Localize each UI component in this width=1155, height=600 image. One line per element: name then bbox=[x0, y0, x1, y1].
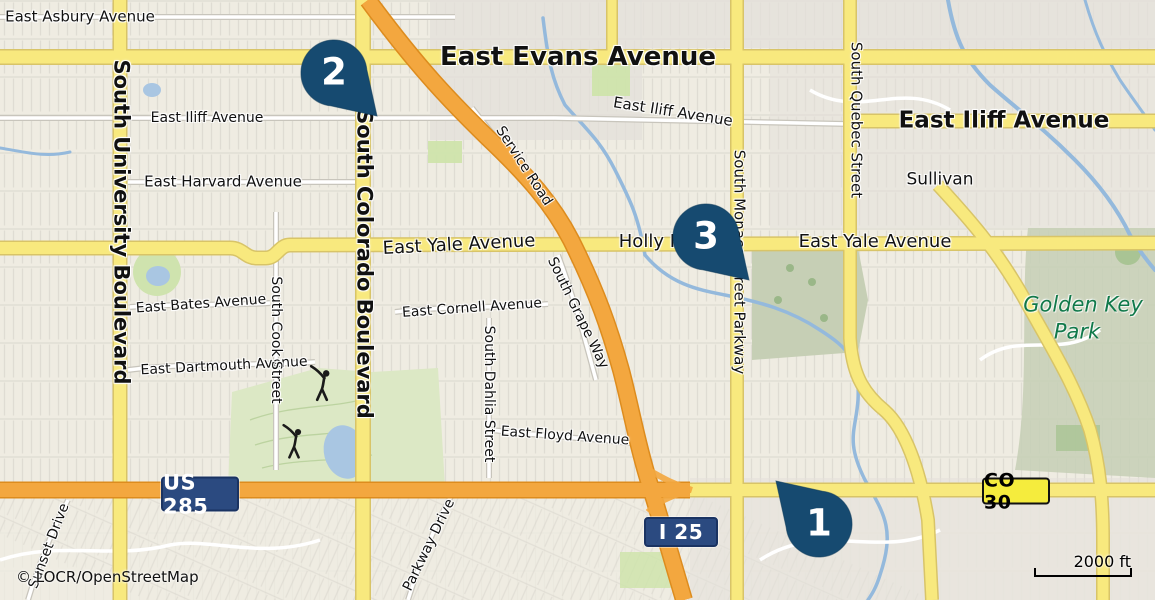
map-pin-1[interactable]: 1 bbox=[769, 474, 869, 574]
map-attribution: © LOCR/OpenStreetMap bbox=[16, 568, 199, 586]
base-map bbox=[0, 0, 1155, 600]
scale-bar bbox=[1034, 568, 1132, 577]
pin-number: 1 bbox=[806, 502, 832, 545]
map-pin-3[interactable]: 3 bbox=[656, 187, 756, 287]
pin-number: 2 bbox=[321, 51, 347, 94]
pin-number: 3 bbox=[693, 215, 719, 258]
map-canvas[interactable]: East Asbury AvenueEast Evans AvenueEast … bbox=[0, 0, 1155, 600]
map-pin-2[interactable]: 2 bbox=[284, 23, 384, 123]
